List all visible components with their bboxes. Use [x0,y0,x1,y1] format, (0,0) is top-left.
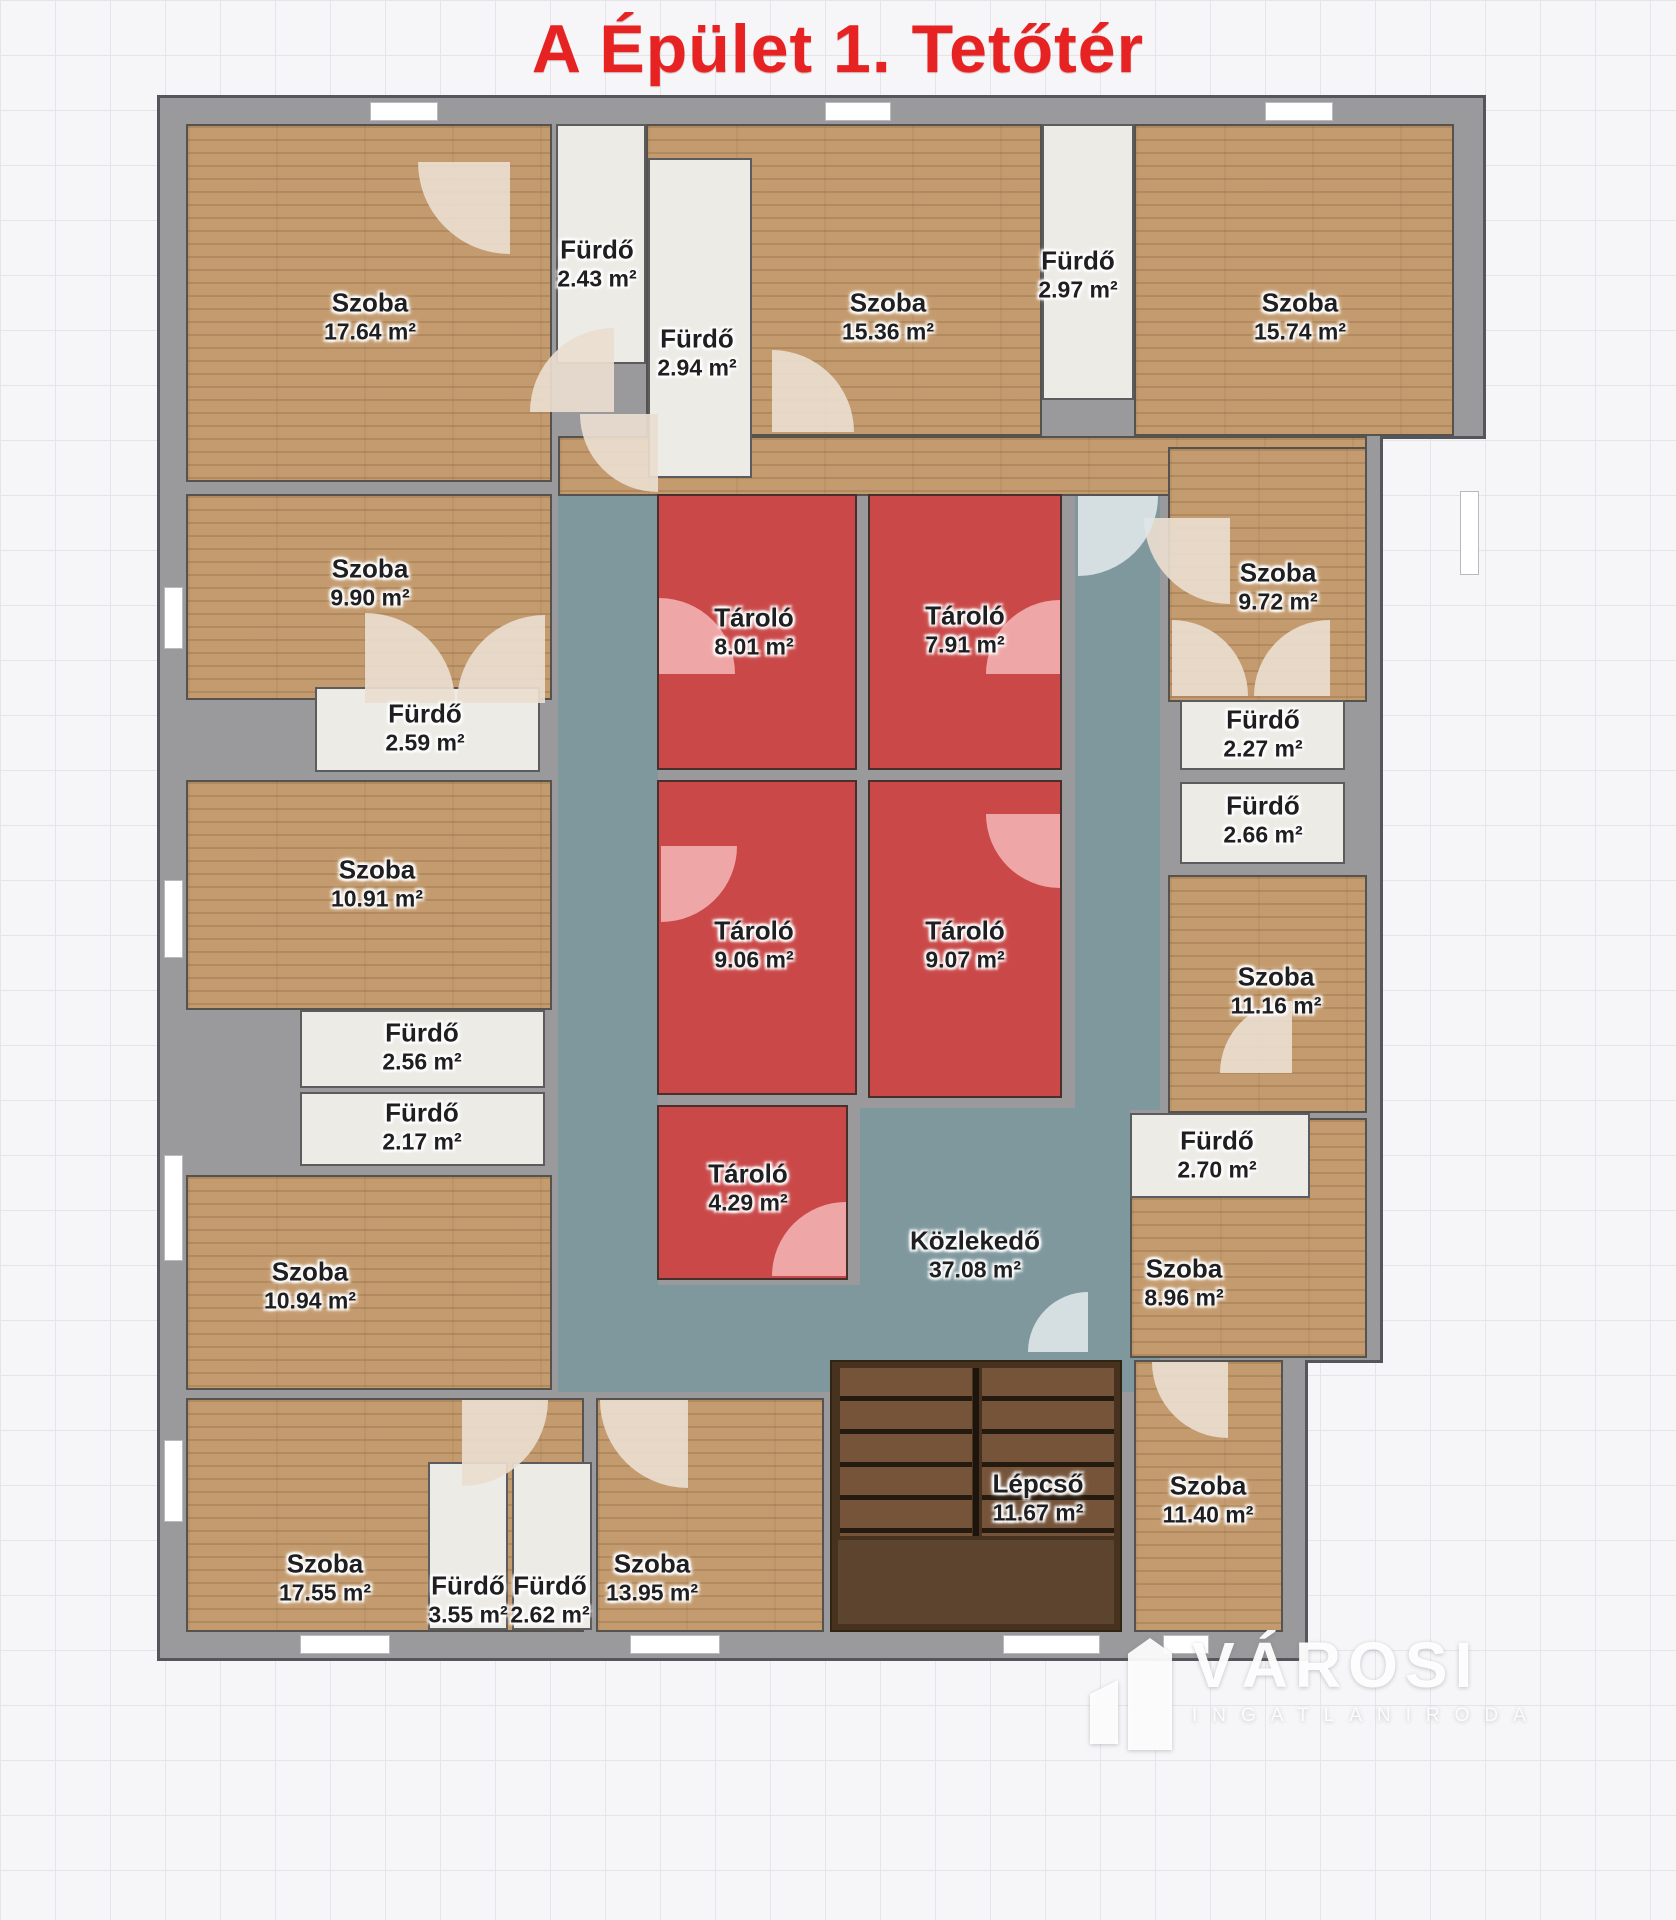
page-title: A Épület 1. Tetőtér [0,10,1676,88]
label-furdo-2-43: Fürdő2.43 m² [557,235,636,294]
corridor-right-strip [1075,494,1160,1110]
label-lepcso: Lépcső11.67 m² [992,1469,1083,1528]
watermark-logo: VÁROSI INGATLANIRODA [1090,1632,1541,1750]
window [1460,491,1479,575]
label-tarolo-7-91: Tároló7.91 m² [925,601,1004,660]
floor-plan: Szoba17.64 m² Fürdő2.43 m² Fürdő2.94 m² … [160,98,1483,1658]
label-furdo-2-70: Fürdő2.70 m² [1177,1126,1256,1185]
window [164,880,183,958]
label-furdo-2-66: Fürdő2.66 m² [1223,791,1302,850]
label-szoba-9-90: Szoba9.90 m² [330,554,409,613]
label-szoba-11-40: Szoba11.40 m² [1163,1471,1254,1530]
window [300,1635,390,1654]
label-kozlekedo: Közlekedő37.08 m² [910,1226,1040,1285]
label-furdo-2-59: Fürdő2.59 m² [385,699,464,758]
label-tarolo-8-01: Tároló8.01 m² [714,603,793,662]
brand-building-icon [1090,1632,1174,1750]
watermark-brand: VÁROSI [1192,1632,1541,1699]
label-tarolo-9-06: Tároló9.06 m² [714,916,793,975]
window [1003,1635,1100,1654]
label-furdo-2-17: Fürdő2.17 m² [382,1098,461,1157]
window [825,102,891,121]
window [370,102,438,121]
label-szoba-10-91: Szoba10.91 m² [331,855,423,914]
window [164,1155,183,1261]
stairs-steps-left [840,1368,972,1536]
label-szoba-11-16: Szoba11.16 m² [1231,962,1322,1021]
label-tarolo-9-07: Tároló9.07 m² [925,916,1004,975]
label-szoba-8-96: Szoba8.96 m² [1144,1254,1223,1313]
window [1265,102,1333,121]
label-tarolo-4-29: Tároló4.29 m² [708,1159,787,1218]
label-szoba-10-94: Szoba10.94 m² [264,1257,356,1316]
window [630,1635,720,1654]
label-furdo-2-56: Fürdő2.56 m² [382,1018,461,1077]
label-furdo-2-62: Fürdő2.62 m² [510,1571,589,1630]
room-szoba-10-94 [186,1175,552,1390]
label-szoba-17-64: Szoba17.64 m² [324,288,416,347]
room-furdo-2-94 [648,158,752,478]
label-furdo-2-94: Fürdő2.94 m² [657,324,736,383]
label-furdo-2-27: Fürdő2.27 m² [1223,705,1302,764]
room-szoba-15-74 [1134,124,1454,436]
stairs-divider [973,1368,979,1536]
label-szoba-9-72: Szoba9.72 m² [1238,558,1317,617]
label-szoba-17-55: Szoba17.55 m² [279,1549,371,1608]
window [164,1440,183,1522]
stairs-landing [838,1540,1114,1624]
window [164,587,183,649]
label-szoba-15-74: Szoba15.74 m² [1254,288,1346,347]
label-szoba-15-36: Szoba15.36 m² [842,288,934,347]
corridor-left-strip [558,494,658,1392]
label-szoba-13-95: Szoba13.95 m² [606,1549,698,1608]
label-furdo-2-97: Fürdő2.97 m² [1038,246,1117,305]
label-furdo-3-55: Fürdő3.55 m² [428,1571,507,1630]
watermark-subtitle: INGATLANIRODA [1192,1705,1541,1727]
